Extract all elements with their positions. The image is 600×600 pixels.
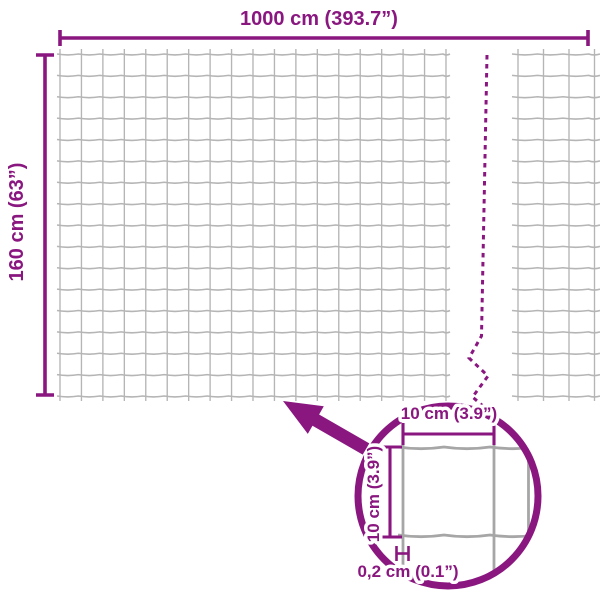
mesh-horizontal-wire	[512, 75, 600, 76]
fence-dimension-diagram: 1000 cm (393.7”) 160 cm (63”) 10 cm (3.9…	[0, 0, 600, 600]
mesh-horizontal-wire	[57, 353, 450, 354]
mesh-horizontal-wire	[57, 225, 450, 226]
mesh-horizontal-wire	[57, 118, 450, 119]
wire-thickness-label: 0,2 cm (0.1”)	[357, 562, 458, 581]
mesh-horizontal-wire	[57, 75, 450, 76]
height-dimension: 160 cm (63”)	[6, 55, 54, 395]
mesh-horizontal-wire	[57, 54, 450, 55]
mesh-horizontal-wire	[512, 396, 600, 397]
mesh-horizontal-wire	[57, 161, 450, 162]
mesh-horizontal-wire	[512, 332, 600, 333]
mesh-panel-left	[57, 49, 450, 401]
mesh-horizontal-wire	[512, 353, 600, 354]
height-dimension-label: 160 cm (63”)	[6, 163, 28, 282]
mesh-horizontal-wire	[57, 182, 450, 183]
break-line	[469, 55, 488, 406]
detail-height-label: 10 cm (3.9”)	[364, 446, 383, 542]
mesh-horizontal-wire	[512, 118, 600, 119]
mesh-horizontal-wire	[512, 268, 600, 269]
mesh-horizontal-wire	[512, 161, 600, 162]
mesh-horizontal-wire	[57, 268, 450, 269]
mesh-horizontal-wire	[512, 182, 600, 183]
mesh-horizontal-wire	[512, 311, 600, 312]
mesh-horizontal-wire	[57, 396, 450, 397]
detail-horizontal-wire	[398, 535, 542, 537]
mesh-horizontal-wire	[57, 311, 450, 312]
mesh-horizontal-wire	[512, 225, 600, 226]
mesh-horizontal-wire	[512, 289, 600, 290]
mesh-horizontal-wire	[57, 289, 450, 290]
mesh-horizontal-wire	[512, 54, 600, 55]
mesh-horizontal-wire	[57, 332, 450, 333]
mesh-horizontal-wire	[512, 97, 600, 98]
mesh-horizontal-wire	[512, 375, 600, 376]
mesh-horizontal-wire	[57, 375, 450, 376]
mesh-horizontal-wire	[57, 140, 450, 141]
mesh-panel-right	[512, 49, 600, 401]
zoom-arrow-icon	[283, 401, 369, 455]
detail-width-label: 10 cm (3.9”)	[401, 404, 497, 423]
mesh-horizontal-wire	[57, 204, 450, 205]
mesh-horizontal-wire	[512, 140, 600, 141]
width-dimension: 1000 cm (393.7”)	[60, 8, 588, 46]
detail-mesh-width-dimension	[403, 423, 494, 445]
mesh-horizontal-wire	[57, 246, 450, 247]
diagram-canvas: 1000 cm (393.7”) 160 cm (63”) 10 cm (3.9…	[0, 0, 600, 600]
mesh-horizontal-wire	[512, 246, 600, 247]
mesh-horizontal-wire	[512, 204, 600, 205]
width-dimension-label: 1000 cm (393.7”)	[240, 8, 398, 30]
mesh-horizontal-wire	[57, 97, 450, 98]
